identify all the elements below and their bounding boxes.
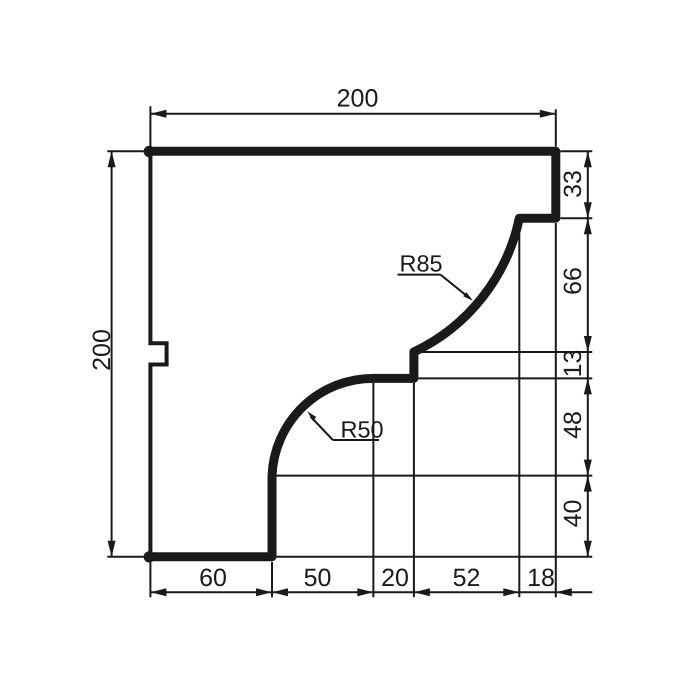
svg-text:200: 200 [337,85,379,113]
svg-text:66: 66 [559,267,587,295]
svg-text:R85: R85 [400,251,443,277]
svg-text:40: 40 [559,500,587,528]
svg-text:R50: R50 [341,416,384,442]
svg-text:48: 48 [559,411,587,439]
svg-text:50: 50 [304,564,332,592]
svg-text:200: 200 [88,329,116,371]
svg-text:13: 13 [559,350,587,378]
svg-text:52: 52 [453,564,481,592]
svg-text:60: 60 [199,564,227,592]
svg-text:33: 33 [559,170,587,198]
svg-text:18: 18 [527,564,555,592]
svg-text:20: 20 [381,564,409,592]
